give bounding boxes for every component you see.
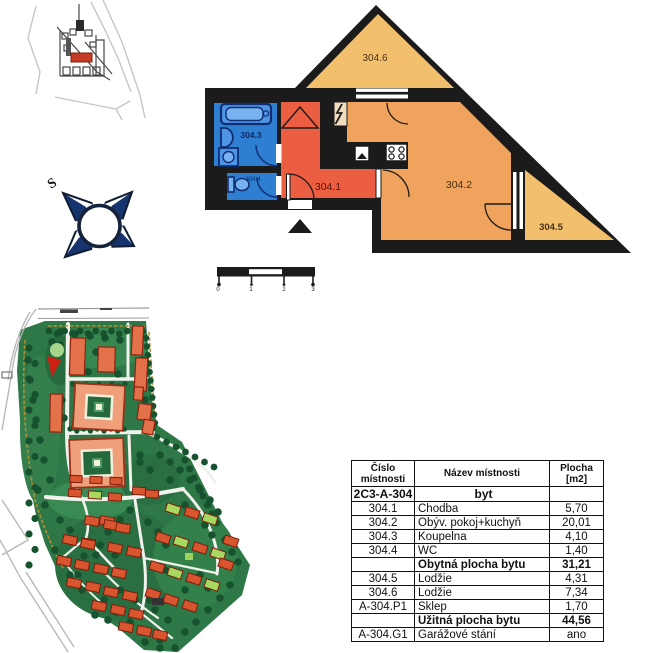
svg-text:304.4: 304.4 [245,177,261,183]
svg-text:0: 0 [216,287,220,293]
svg-text:S: S [45,175,60,192]
svg-text:304.6: 304.6 [362,53,387,64]
svg-text:304.1: 304.1 [315,181,341,193]
svg-text:3: 3 [311,287,315,293]
svg-text:2: 2 [282,287,286,293]
svg-text:304.3: 304.3 [240,130,262,140]
svg-text:304.5: 304.5 [539,222,563,233]
svg-text:1: 1 [249,287,253,293]
svg-text:304.2: 304.2 [446,179,472,191]
